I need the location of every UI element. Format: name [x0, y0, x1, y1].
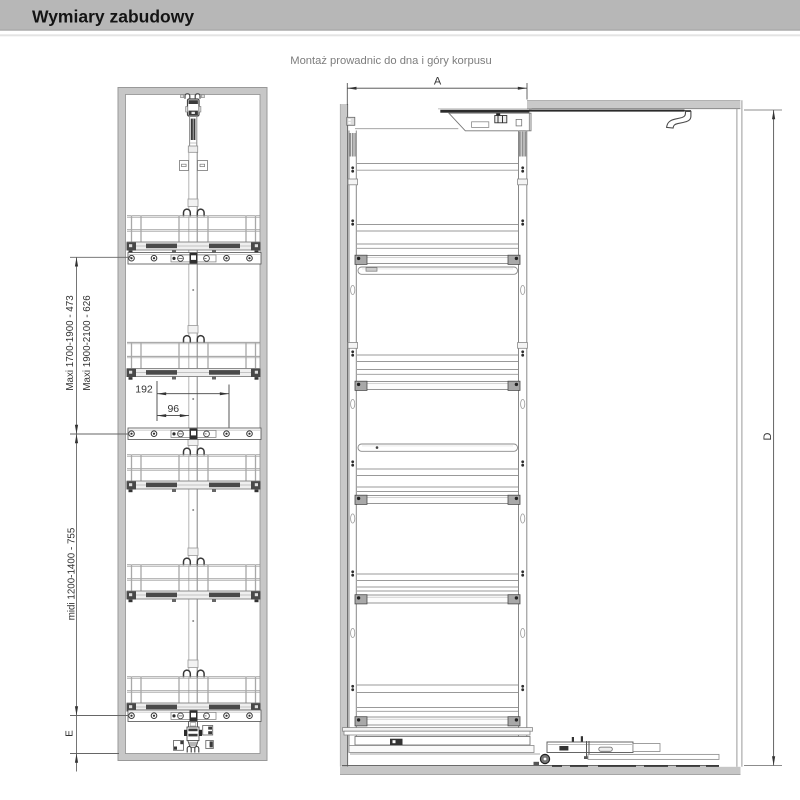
svg-text:midi 1200-1400 - 755: midi 1200-1400 - 755 — [67, 527, 78, 620]
svg-text:D: D — [762, 432, 774, 440]
svg-text:E: E — [65, 730, 76, 737]
svg-text:Maxi 1700-1900 - 473: Maxi 1700-1900 - 473 — [65, 295, 76, 391]
svg-text:Wymiary zabudowy: Wymiary zabudowy — [32, 7, 194, 27]
svg-text:Montaż prowadnic do dna i góry: Montaż prowadnic do dna i góry korpusu — [290, 55, 492, 67]
svg-text:Maxi 1900-2100 - 626: Maxi 1900-2100 - 626 — [82, 295, 93, 391]
svg-text:A: A — [434, 75, 442, 87]
svg-text:192: 192 — [135, 383, 153, 395]
svg-text:96: 96 — [167, 403, 179, 415]
